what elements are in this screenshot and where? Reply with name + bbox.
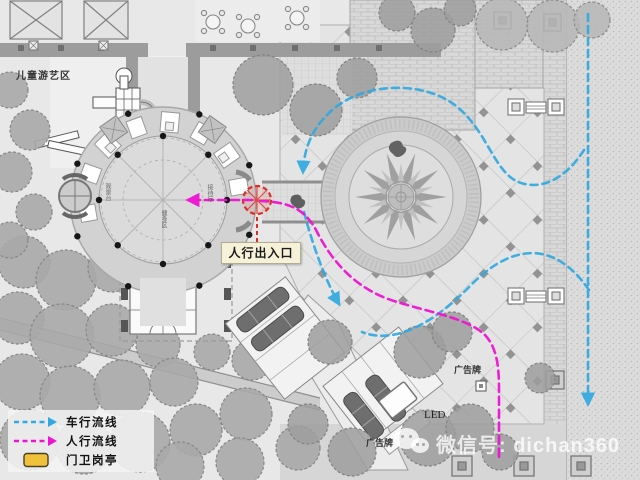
watermark: 微信号: dichan360	[394, 426, 620, 460]
site-plan-drawing	[0, 0, 640, 480]
micro-label-left: 观景台	[104, 183, 110, 201]
legend-label: 车行流线	[66, 414, 118, 430]
billboard-marker	[476, 381, 486, 391]
fountain-plaza	[321, 117, 481, 277]
wechat-icon	[394, 426, 430, 460]
led-label: LED	[424, 409, 445, 421]
road-right	[566, 0, 640, 480]
sidewalk-strip	[543, 0, 566, 480]
outdoor-tables	[195, 0, 320, 42]
octagon-plaza	[70, 107, 256, 293]
vehicle-flow-swatch	[12, 415, 58, 429]
legend: 车行流线 人行流线 门卫岗亭	[8, 410, 154, 472]
billboard-label-top: 广告牌	[454, 363, 481, 376]
children-area-label: 儿童游艺区	[16, 67, 71, 82]
site-plan: 儿童游艺区 人行出入口 广告牌 LED 广告牌 观景台 接待厅 健身区 车行流线…	[0, 0, 640, 480]
legend-item-pedestrian-flow: 人行流线	[12, 432, 150, 450]
legend-label: 门卫岗亭	[66, 452, 118, 468]
watermark-text: 微信号: dichan360	[436, 429, 620, 458]
pedestrian-flow-swatch	[12, 434, 58, 448]
micro-label-right: 接待厅	[206, 184, 212, 202]
legend-item-vehicle-flow: 车行流线	[12, 413, 150, 431]
octagon-south-gate	[140, 278, 186, 326]
guard-booth-swatch	[12, 452, 58, 468]
pedestrian-entrance-label: 人行出入口	[221, 242, 301, 264]
billboard-label-bottom: 广告牌	[366, 436, 393, 449]
micro-label-bottom: 健身区	[160, 210, 166, 228]
legend-label: 人行流线	[66, 433, 118, 449]
legend-item-guard-booth: 门卫岗亭	[12, 451, 150, 469]
